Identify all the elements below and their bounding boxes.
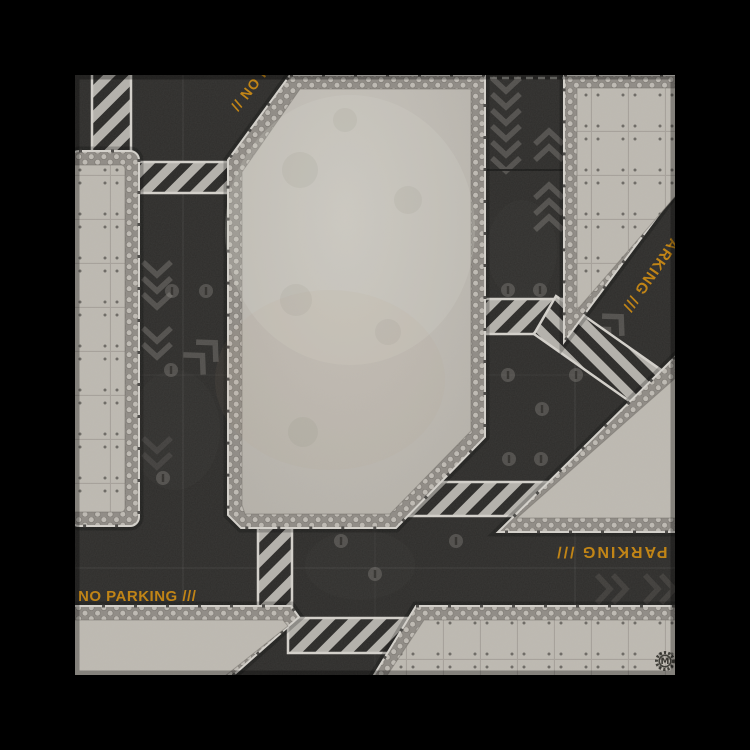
battle-mat: // NO PARKING NO PARKING /// NO PARKING … — [0, 0, 750, 750]
battle-mat-product-image: // NO PARKING NO PARKING /// NO PARKING … — [0, 0, 750, 750]
mat-surface: // NO PARKING NO PARKING /// NO PARKING … — [70, 15, 705, 680]
print-grain-texture — [75, 75, 675, 675]
